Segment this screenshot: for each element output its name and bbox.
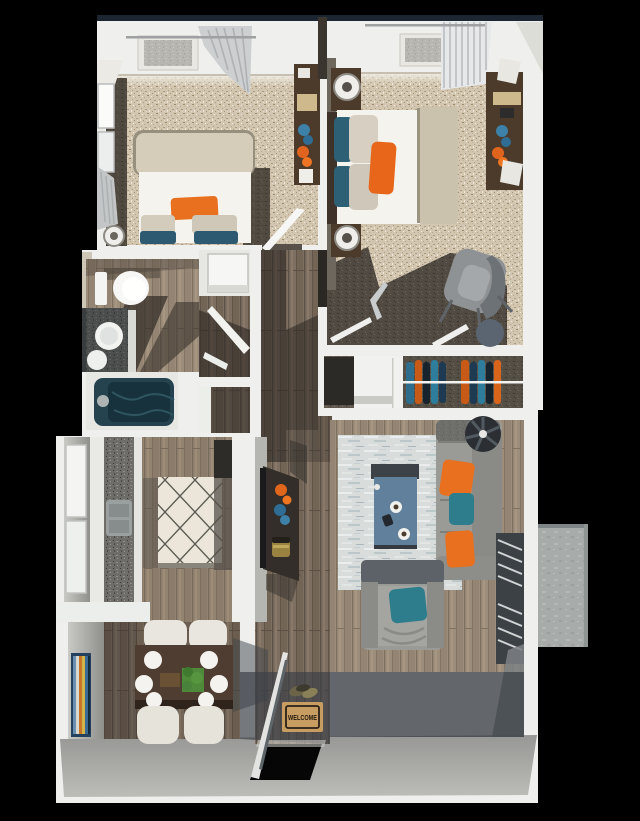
svg-text:WELCOME: WELCOME — [288, 715, 317, 722]
